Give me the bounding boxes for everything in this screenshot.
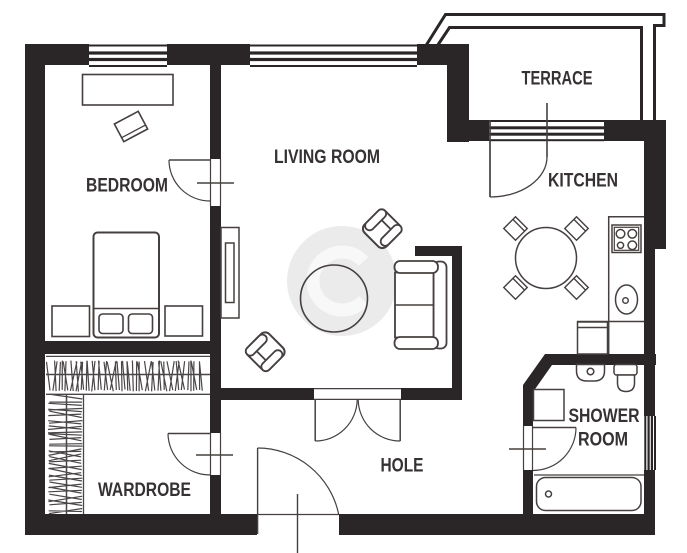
svg-text:LIVING ROOM: LIVING ROOM (274, 146, 380, 168)
svg-text:ROOM: ROOM (578, 429, 628, 451)
svg-text:BEDROOM: BEDROOM (86, 174, 168, 196)
svg-text:HOLE: HOLE (381, 454, 424, 476)
svg-text:WARDROBE: WARDROBE (98, 479, 191, 501)
svg-text:SHOWER: SHOWER (569, 405, 640, 427)
svg-text:TERRACE: TERRACE (522, 68, 593, 90)
svg-text:KITCHEN: KITCHEN (548, 169, 618, 191)
